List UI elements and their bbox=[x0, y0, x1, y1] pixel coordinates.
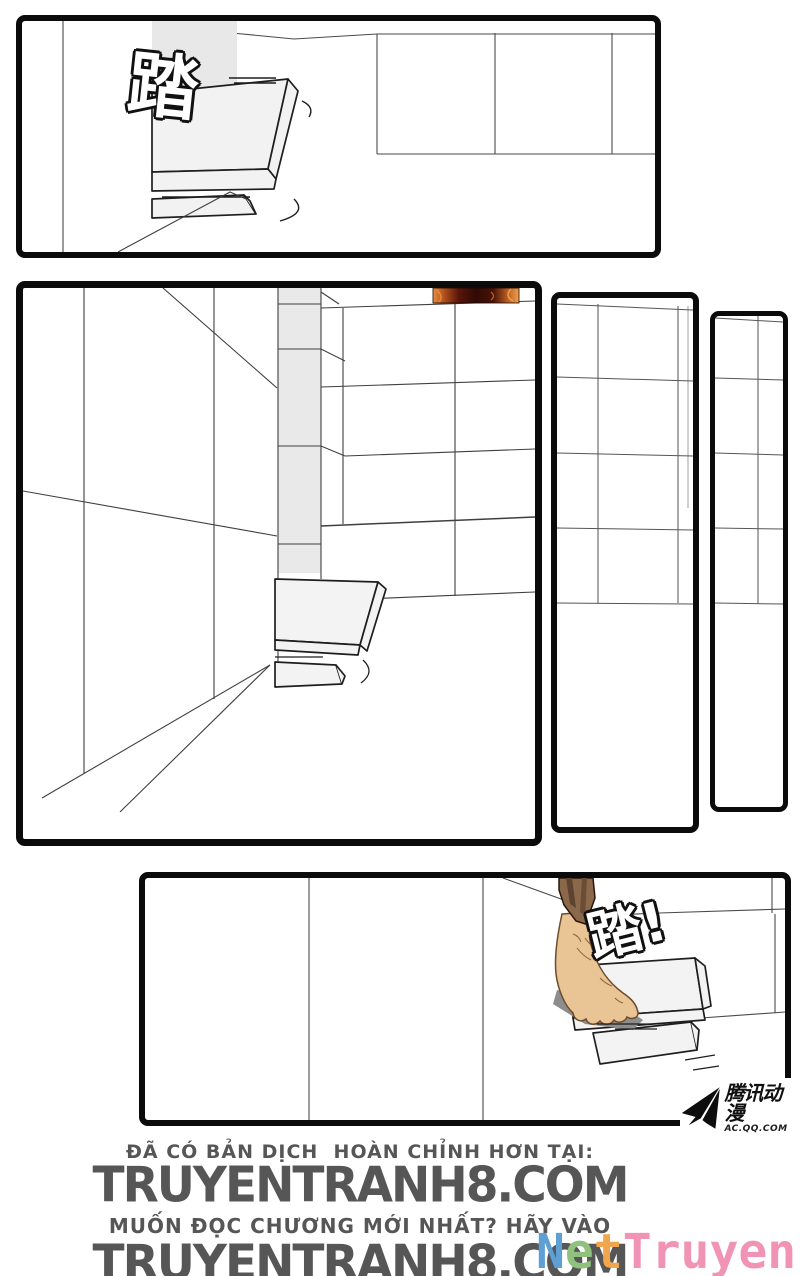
gray-column bbox=[278, 288, 321, 573]
tile-wall-lines bbox=[557, 298, 693, 827]
watermark-letter: n bbox=[767, 1224, 796, 1276]
watermark-letter: T bbox=[623, 1224, 652, 1276]
torch-flame bbox=[433, 288, 519, 303]
watermark-letter: e bbox=[565, 1224, 594, 1276]
panel-stairwell-wide bbox=[16, 281, 542, 846]
watermark-letter: y bbox=[709, 1224, 738, 1276]
stairwell-line-art bbox=[23, 288, 535, 839]
watermark-letter: e bbox=[738, 1224, 767, 1276]
footer-site-1: TRUYENTRANH8.COM bbox=[40, 1157, 680, 1214]
watermark-letter: t bbox=[594, 1224, 623, 1276]
right-wall-tiles bbox=[321, 301, 535, 599]
tencent-comics-watermark: 腾讯动漫 AC.QQ.COM bbox=[680, 1078, 796, 1138]
panel-wall-strip-1 bbox=[551, 292, 699, 833]
manga-page: 踏 踏! 腾讯动漫 AC.QQ.COM ĐÃ CÓ BẢN DỊCH HOÀN … bbox=[0, 0, 800, 1276]
watermark-letter: r bbox=[652, 1224, 681, 1276]
stair-line-art-top bbox=[22, 21, 655, 252]
paper-plane-icon bbox=[680, 1082, 721, 1134]
panel-wall-strip-2 bbox=[710, 311, 788, 812]
left-wall-lines bbox=[23, 288, 277, 812]
sfx-stomp-top: 踏 bbox=[125, 49, 202, 126]
tencent-brand-text: 腾讯动漫 bbox=[724, 1083, 796, 1123]
nettruyen-watermark: NetTruyen bbox=[536, 1228, 796, 1276]
panel-top-tilting-step bbox=[16, 15, 661, 258]
tile-wall-lines bbox=[715, 316, 783, 807]
tencent-site-text: AC.QQ.COM bbox=[724, 1125, 796, 1134]
watermark-letter: N bbox=[536, 1224, 565, 1276]
watermark-letter: u bbox=[681, 1224, 710, 1276]
